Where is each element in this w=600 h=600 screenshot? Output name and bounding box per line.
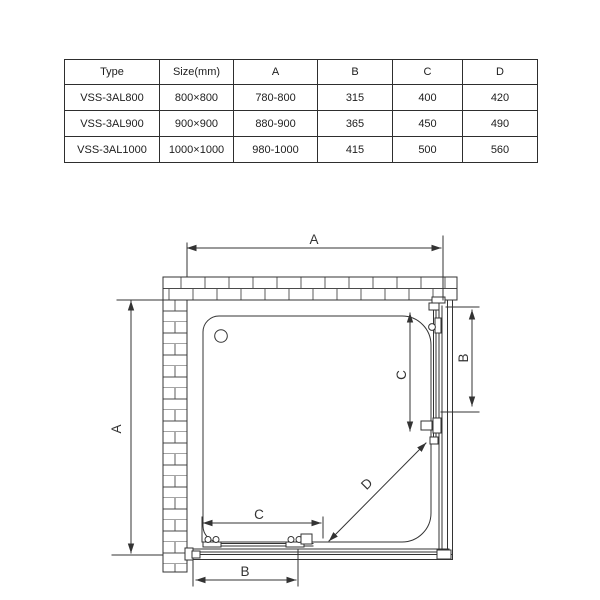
wall-left (163, 300, 187, 572)
bottom-roller-icon (213, 537, 219, 543)
frame-bottom (185, 534, 453, 560)
bottom-outer-profile (187, 548, 453, 560)
wall-top (163, 277, 457, 300)
bottom-roller-plate (203, 542, 221, 547)
dimension-a-left: A (109, 300, 163, 555)
drain-icon (215, 330, 228, 343)
drawing-root: A A B C C B (109, 232, 479, 586)
shower-enclosure-plan-drawing: A A B C C B (0, 0, 600, 600)
right-roller-icon (429, 324, 436, 331)
dim-label-d: D (358, 475, 376, 493)
dimension-b-right: B (441, 307, 479, 412)
shower-tray (203, 316, 431, 542)
dimension-d-diagonal: D (329, 443, 426, 541)
right-roller-plate (435, 318, 441, 333)
bottom-roller-icon (205, 537, 211, 543)
right-door-end-cap (430, 437, 438, 444)
dim-label-a-left: A (109, 424, 124, 433)
dim-label-b-bottom: B (240, 564, 249, 579)
bottom-track (193, 549, 449, 552)
dim-label-c-bottom: C (254, 507, 264, 522)
bottom-roller-icon (288, 537, 294, 543)
corner-block (437, 550, 451, 559)
frame-right (421, 297, 453, 560)
dimension-c-right: C (394, 313, 410, 431)
dim-label-b-right: B (456, 353, 471, 362)
bottom-wall-bracket (192, 551, 200, 558)
right-door-handle (421, 421, 432, 430)
bottom-door-handle (301, 534, 312, 544)
right-handle-plate (433, 418, 441, 433)
dim-label-a-top: A (309, 232, 318, 247)
dim-label-c-right: C (394, 370, 409, 380)
right-wall-bracket (429, 303, 439, 310)
